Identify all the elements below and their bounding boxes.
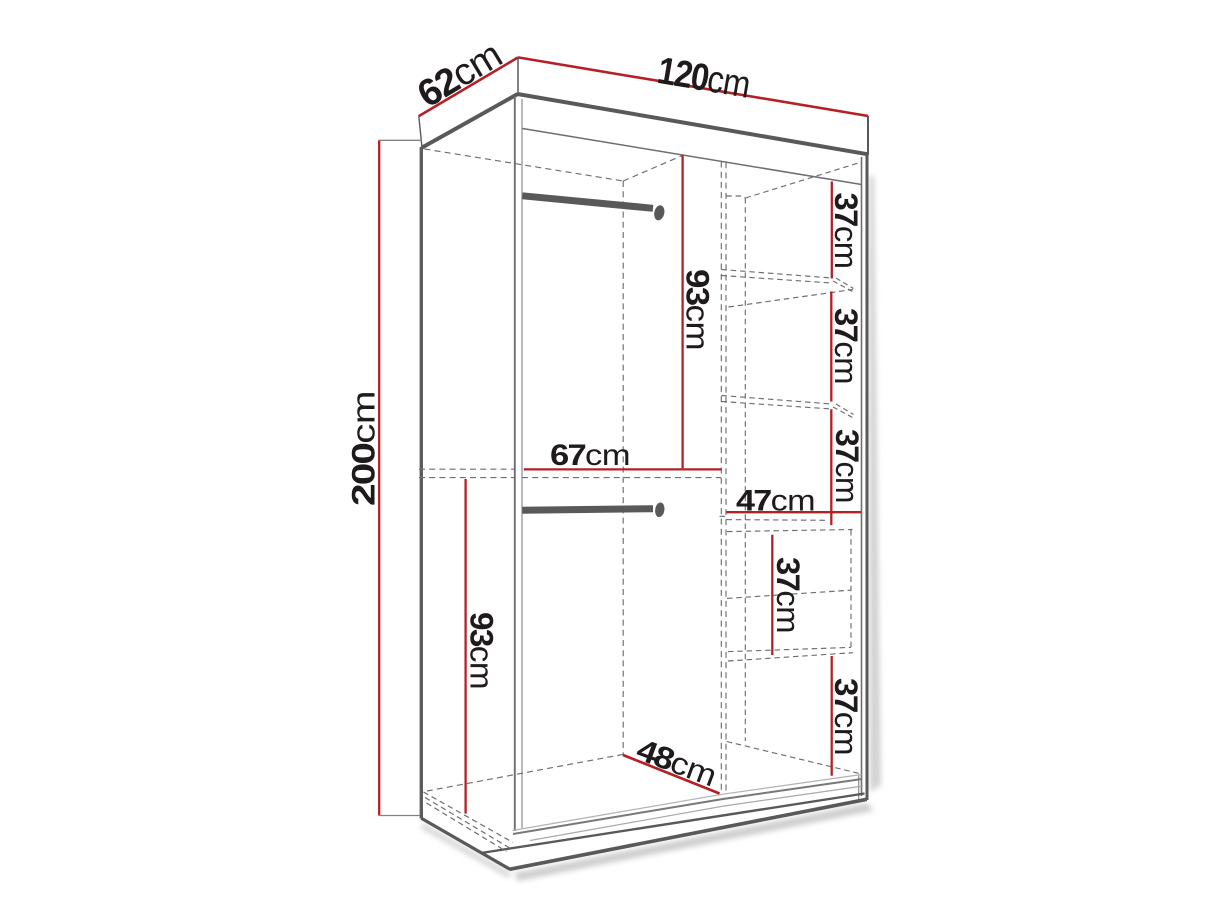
svg-text:47cm: 47cm: [736, 485, 815, 518]
svg-text:93cm: 93cm: [680, 269, 716, 350]
svg-text:93cm: 93cm: [464, 612, 500, 689]
svg-text:37cm: 37cm: [828, 193, 864, 269]
svg-text:37cm: 37cm: [829, 429, 865, 503]
svg-text:37cm: 37cm: [828, 308, 864, 384]
svg-text:37cm: 37cm: [828, 678, 864, 755]
svg-text:37cm: 37cm: [770, 557, 806, 633]
svg-text:200cm: 200cm: [346, 391, 382, 506]
svg-text:67cm: 67cm: [550, 439, 630, 472]
